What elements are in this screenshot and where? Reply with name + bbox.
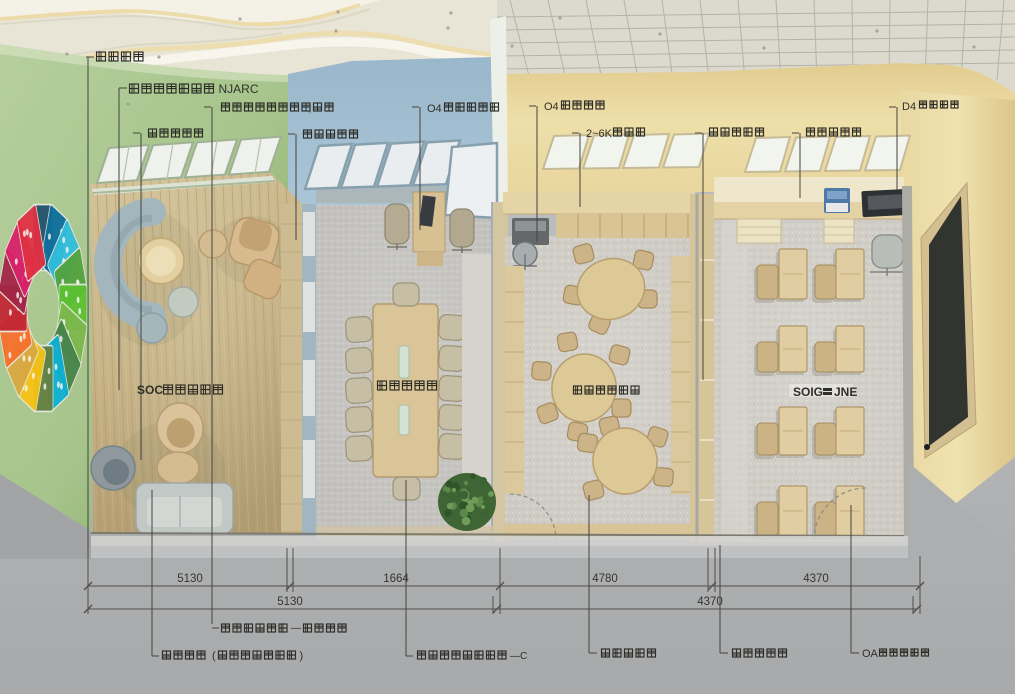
svg-text:5130: 5130 xyxy=(177,573,203,585)
svg-text:4370: 4370 xyxy=(803,573,829,585)
svg-text:O4: O4 xyxy=(544,101,559,113)
svg-text:OA: OA xyxy=(862,648,879,660)
svg-text:O4: O4 xyxy=(427,103,442,115)
svg-text:NJARC: NJARC xyxy=(219,82,259,96)
svg-text:4780: 4780 xyxy=(592,573,618,585)
svg-text:1664: 1664 xyxy=(383,573,409,585)
svg-text:): ) xyxy=(300,650,304,662)
svg-text:JNE: JNE xyxy=(834,385,857,399)
svg-text:5130: 5130 xyxy=(277,596,303,608)
svg-text:(: ( xyxy=(212,650,216,662)
svg-text:—C: —C xyxy=(510,651,527,662)
svg-text:D4: D4 xyxy=(902,101,916,113)
svg-text:2~6K: 2~6K xyxy=(586,128,613,140)
svg-text:4370: 4370 xyxy=(697,596,723,608)
svg-text:SOIG: SOIG xyxy=(793,385,823,399)
svg-text:—: — xyxy=(291,623,301,634)
svg-text:SOC: SOC xyxy=(137,383,163,397)
